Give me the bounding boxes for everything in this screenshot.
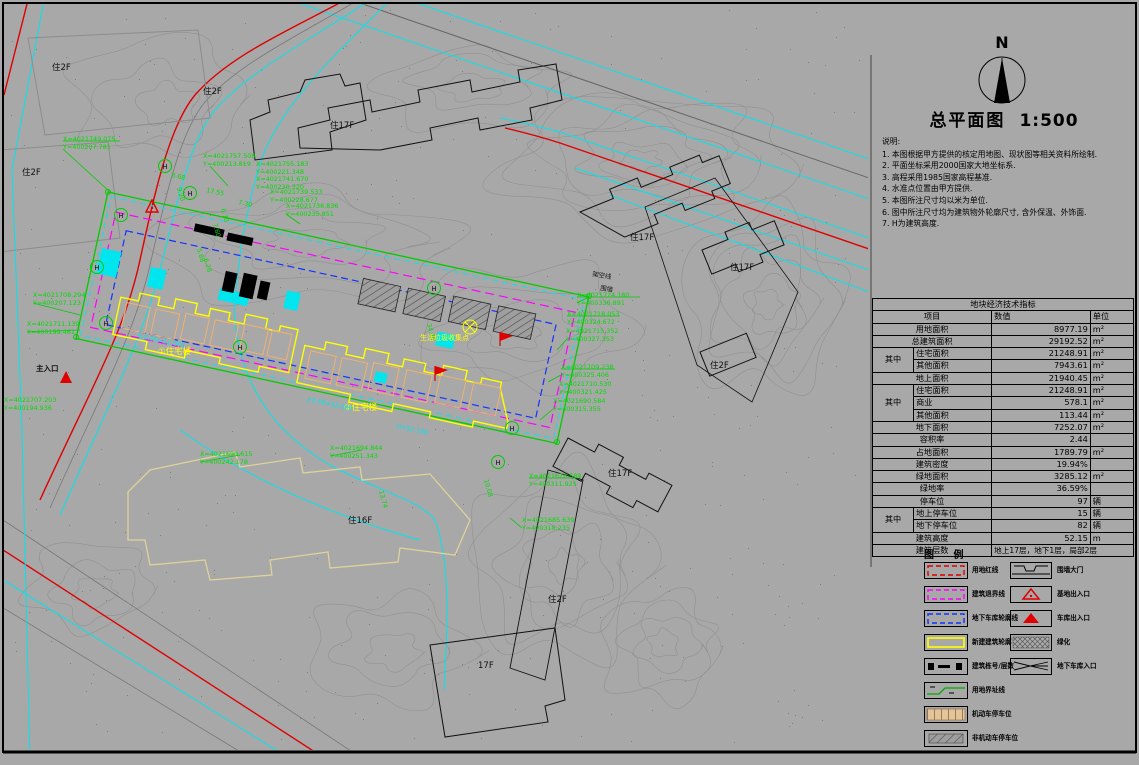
survey-dot: [660, 450, 661, 451]
survey-dot: [409, 68, 410, 69]
survey-dot: [595, 289, 596, 290]
survey-dot: [280, 659, 281, 660]
survey-dot: [743, 643, 744, 644]
note-line: 2. 平面坐标采用2000国家大地坐标系.: [882, 160, 1136, 172]
survey-dot: [199, 610, 200, 611]
building-label: 住2F: [52, 62, 71, 73]
survey-dot: [162, 732, 163, 733]
survey-dot: [63, 410, 64, 411]
survey-dot: [633, 246, 634, 247]
survey-dot: [322, 218, 323, 219]
survey-dot: [535, 13, 536, 14]
survey-dot: [263, 214, 264, 215]
building-outline-16f: [128, 452, 470, 580]
survey-dot: [558, 26, 559, 27]
survey-dot: [245, 23, 246, 24]
survey-dot: [785, 238, 786, 239]
survey-dot: [469, 694, 470, 695]
service-structures: [182, 223, 279, 302]
survey-dot: [835, 195, 836, 196]
survey-dot: [94, 118, 95, 119]
legend-label: 地下车库入口: [1057, 658, 1097, 674]
survey-dot: [645, 254, 646, 255]
survey-dot: [343, 48, 344, 49]
survey-dot: [611, 488, 612, 489]
survey-dot: [620, 110, 621, 111]
contour-line: [548, 547, 579, 584]
svg-text:H: H: [94, 264, 99, 272]
survey-dot: [60, 479, 61, 480]
survey-dot: [443, 430, 444, 431]
survey-dot: [783, 564, 784, 565]
survey-dot: [643, 360, 644, 361]
survey-dot: [492, 51, 493, 52]
building-label: 住17F: [608, 468, 632, 479]
survey-dot: [390, 10, 391, 11]
drawing-scale: 1:500: [1019, 111, 1078, 131]
coord-label: X=4021736.836Y=400235.851: [285, 202, 338, 218]
svg-text:H: H: [495, 459, 500, 467]
survey-dot: [779, 596, 780, 597]
legend-swatch-building-number: [924, 658, 968, 675]
contour-line: [468, 470, 640, 644]
survey-dot: [845, 258, 846, 259]
contour-line: [403, 53, 542, 110]
coordinate-labels: X=4021749.075Y=400207.781 X=4021757.508Y…: [3, 135, 629, 532]
survey-dot: [734, 742, 735, 743]
survey-dot: [90, 590, 91, 591]
survey-dot: [836, 366, 837, 367]
coord-label: X=4021694.844Y=400251.343: [329, 444, 382, 460]
survey-dot: [166, 273, 167, 274]
survey-dot: [831, 427, 832, 428]
survey-dot: [854, 112, 855, 113]
survey-dot: [793, 371, 794, 372]
survey-dot: [431, 660, 432, 661]
contour-line: [18, 543, 158, 637]
dim-label: 9.20: [175, 187, 185, 202]
survey-dot: [206, 170, 207, 171]
survey-dot: [39, 268, 40, 269]
table-row: 其中地上停车位15辆: [873, 508, 1134, 520]
survey-dot: [602, 464, 603, 465]
building-outline: [576, 147, 734, 250]
legend-label: 绿化: [1057, 634, 1070, 650]
survey-dot: [235, 495, 236, 496]
survey-dot: [669, 591, 670, 592]
contour-line: [262, 229, 349, 257]
contour-line: [647, 628, 679, 657]
building-outline: [510, 470, 583, 680]
survey-dot: [396, 180, 397, 181]
survey-dot: [246, 331, 247, 332]
survey-dot: [174, 581, 175, 582]
contour-line: [575, 126, 720, 187]
survey-dot: [751, 385, 752, 386]
svg-text:H: H: [162, 163, 167, 171]
survey-dot: [794, 690, 795, 691]
survey-dot: [168, 269, 169, 270]
survey-dot: [82, 591, 83, 592]
coord-label: X=4021699.615Y=400242.178: [199, 450, 252, 466]
contour-line: [329, 611, 451, 687]
building-label: 住2F: [548, 594, 567, 605]
survey-dot: [744, 475, 745, 476]
survey-dot: [165, 124, 166, 125]
survey-dot: [732, 574, 733, 575]
survey-dot: [619, 274, 620, 275]
survey-dot: [180, 152, 181, 153]
survey-dot: [300, 273, 301, 274]
survey-dot: [673, 416, 674, 417]
survey-dot: [377, 703, 378, 704]
survey-dot: [750, 425, 751, 426]
survey-dot: [379, 118, 380, 119]
survey-dot: [128, 326, 129, 327]
survey-dot: [346, 46, 347, 47]
survey-dot: [547, 276, 548, 277]
survey-dot: [99, 311, 100, 312]
survey-dot: [814, 93, 815, 94]
survey-dot: [399, 203, 400, 204]
survey-dot: [404, 344, 405, 345]
survey-dot: [398, 81, 399, 82]
survey-dot: [788, 606, 789, 607]
survey-dot: [818, 618, 819, 619]
project-site: [75, 192, 589, 447]
survey-dot: [305, 152, 306, 153]
survey-dot: [162, 612, 163, 613]
coord-label: X=4021708.294Y=400207.123: [32, 291, 85, 307]
legend-swatch-garage-line: [924, 610, 968, 627]
survey-dot: [317, 558, 318, 559]
survey-dot: [242, 127, 243, 128]
legend-label: 建筑退界线: [972, 586, 1005, 602]
survey-dot: [66, 57, 67, 58]
legend-swatch-gate: [1010, 562, 1052, 579]
survey-dot: [275, 453, 276, 454]
survey-dot: [87, 269, 88, 270]
survey-dot: [662, 645, 663, 646]
survey-dot: [717, 597, 718, 598]
survey-dot: [498, 650, 499, 651]
legend-swatch-new-building: [924, 634, 968, 651]
legend-swatch-setback-line: [924, 586, 968, 603]
survey-dot: [140, 474, 141, 475]
survey-dot: [352, 482, 353, 483]
height-label: H=52.150: [396, 422, 429, 437]
survey-dot: [420, 147, 421, 148]
survey-dot: [178, 509, 179, 510]
survey-dot: [255, 87, 256, 88]
survey-dot: [31, 229, 32, 230]
survey-dot: [533, 629, 534, 630]
survey-dot: [682, 250, 683, 251]
survey-dot: [201, 696, 202, 697]
survey-dot: [273, 313, 274, 314]
survey-dot: [96, 724, 97, 725]
survey-dot: [179, 679, 180, 680]
survey-dot: [339, 64, 340, 65]
survey-dot: [233, 512, 234, 513]
survey-dot: [833, 453, 834, 454]
svg-text:H: H: [431, 285, 436, 293]
survey-dot: [307, 672, 308, 673]
survey-dot: [166, 572, 167, 573]
survey-dot: [232, 431, 233, 432]
survey-dot: [778, 701, 779, 702]
survey-dot: [106, 600, 107, 601]
survey-dot: [546, 560, 547, 561]
survey-dot: [287, 263, 288, 264]
carport-row: [358, 276, 536, 341]
contour-line: [367, 45, 571, 133]
survey-dot: [468, 667, 469, 668]
survey-dot: [550, 29, 551, 30]
legend-label: 建筑栋号/层数: [972, 658, 1014, 674]
survey-dot: [155, 171, 156, 172]
survey-dot: [91, 683, 92, 684]
survey-dot: [510, 597, 511, 598]
survey-dot: [281, 739, 282, 740]
survey-dot: [283, 151, 284, 152]
building-outline: [250, 74, 366, 160]
survey-dot: [654, 410, 655, 411]
table-row: 绿地面积3285.12m²: [873, 471, 1134, 483]
survey-dot: [88, 252, 89, 253]
survey-dot: [69, 525, 70, 526]
survey-dot: [789, 726, 790, 727]
markers: [60, 200, 513, 383]
page-title: 总平面图1:500: [873, 106, 1135, 131]
survey-dot: [125, 532, 126, 533]
entrance-arrow: [60, 371, 72, 383]
survey-dot: [720, 505, 721, 506]
survey-dot: [563, 591, 564, 592]
survey-dot: [712, 462, 713, 463]
legend-swatch-garage-ramp: [1010, 658, 1052, 675]
survey-dot: [628, 328, 629, 329]
survey-dot: [795, 715, 796, 716]
survey-dot: [543, 615, 544, 616]
survey-dot: [606, 350, 607, 351]
legend-label: 用地界址线: [972, 682, 1005, 698]
survey-dot: [683, 657, 684, 658]
survey-dot: [409, 345, 410, 346]
survey-dot: [427, 460, 428, 461]
survey-dot: [758, 79, 759, 80]
survey-dot: [668, 253, 669, 254]
survey-dot: [139, 79, 140, 80]
building-outline: [298, 64, 562, 150]
survey-dot: [660, 678, 661, 679]
survey-dot: [275, 245, 276, 246]
survey-dot: [412, 507, 413, 508]
contour-line: [620, 150, 663, 172]
building-label: 住2F: [22, 167, 41, 178]
contour-line: [72, 578, 119, 609]
survey-dot: [462, 664, 463, 665]
survey-dot: [414, 738, 415, 739]
survey-dot: [148, 513, 149, 514]
survey-dot: [20, 253, 21, 254]
survey-dot: [429, 584, 430, 585]
survey-dot: [72, 350, 73, 351]
survey-dot: [792, 723, 793, 724]
note-line: 1. 本图根据甲方提供的核定用地图、现状图等相关资料所绘制.: [882, 149, 1136, 161]
survey-dot: [729, 253, 730, 254]
coord-label: X=4021757.508Y=400213.819: [202, 152, 255, 168]
site-text-labels: ①住宅楼 ②住宅楼 生活垃圾收集点 主入口 ±0.00=52.000 H=52.…: [36, 269, 614, 437]
survey-dot: [732, 614, 733, 615]
survey-dot: [500, 21, 501, 22]
survey-dot: [587, 562, 588, 563]
table-row: 其中住宅面积21248.91m²: [873, 348, 1134, 360]
contour-line: [310, 589, 489, 711]
survey-dot: [450, 21, 451, 22]
survey-dot: [791, 226, 792, 227]
survey-dot: [77, 454, 78, 455]
survey-dot: [746, 80, 747, 81]
survey-dot: [377, 218, 378, 219]
survey-dot: [697, 387, 698, 388]
survey-dot: [835, 282, 836, 283]
survey-dot: [515, 709, 516, 710]
coord-label: X=4021718.053Y=400324.672: [566, 310, 619, 326]
survey-dot: [46, 610, 47, 611]
svg-text:H: H: [237, 344, 242, 352]
building-labels: 住2F 住2F 住2F 住17F 住17F 住17F 住2F 住16F 住17F…: [22, 62, 754, 671]
legend-swatch-bike-parking: [924, 730, 968, 747]
survey-dot: [739, 428, 740, 429]
legend-swatch-greenery: [1010, 634, 1052, 651]
survey-dot: [634, 613, 635, 614]
survey-dot: [156, 408, 157, 409]
survey-dot: [530, 658, 531, 659]
survey-dot: [31, 530, 32, 531]
survey-dot: [268, 435, 269, 436]
new-building-2: [295, 336, 517, 437]
table-row: 地下面积7252.07m²: [873, 421, 1134, 433]
survey-dot: [802, 717, 803, 718]
survey-dot: [765, 197, 766, 198]
survey-dot: [165, 193, 166, 194]
survey-dot: [352, 386, 353, 387]
contour-line: [743, 273, 800, 334]
survey-dot: [209, 618, 210, 619]
survey-dot: [217, 503, 218, 504]
survey-dot: [462, 71, 463, 72]
survey-dot: [109, 313, 110, 314]
survey-dot: [278, 681, 279, 682]
survey-dot: [278, 95, 279, 96]
survey-dot: [369, 624, 370, 625]
survey-dot: [585, 497, 586, 498]
note-line: 4. 水准点位置由甲方提供.: [882, 183, 1136, 195]
survey-dot: [650, 658, 651, 659]
survey-dot: [797, 484, 798, 485]
survey-dot: [784, 215, 785, 216]
indicators-table: 地块经济技术指标 项目数值单位 用地面积8977.19m² 总建筑面积29192…: [872, 298, 1134, 557]
survey-dot: [556, 173, 557, 174]
legend-swatch-red-line: [924, 562, 968, 579]
coord-label: X=4021685.639Y=400318.235: [521, 516, 574, 532]
survey-dot: [642, 395, 643, 396]
survey-dot: [631, 741, 632, 742]
dim-label: 7.30: [238, 199, 253, 209]
survey-dot: [357, 199, 358, 200]
survey-dot: [788, 713, 789, 714]
coord-label: X=4021676.589Y=400311.925: [528, 472, 581, 488]
survey-dot: [162, 131, 163, 132]
survey-dot: [611, 36, 612, 37]
survey-dot: [822, 720, 823, 721]
survey-dot: [763, 499, 764, 500]
table-row: 用地面积8977.19m²: [873, 323, 1134, 335]
legend-label: 基地出入口: [1057, 586, 1090, 602]
survey-dot: [154, 64, 155, 65]
survey-dot: [657, 420, 658, 421]
survey-dot: [214, 574, 215, 575]
survey-dot: [424, 673, 425, 674]
contour-line: [709, 217, 847, 383]
survey-dot: [377, 597, 378, 598]
survey-dot: [430, 659, 431, 660]
survey-dot: [734, 219, 735, 220]
survey-dot: [516, 139, 517, 140]
building-label: 住17F: [730, 262, 754, 273]
survey-dot: [581, 736, 582, 737]
survey-dot: [730, 558, 731, 559]
legend-swatch-parking: [924, 706, 968, 723]
survey-dot: [93, 674, 94, 675]
table-row: 项目数值单位: [873, 311, 1134, 323]
main-entrance-label: 主入口: [36, 363, 59, 373]
survey-dot: [435, 429, 436, 430]
survey-dot: [712, 466, 713, 467]
legend-swatch-boundary-line: [924, 682, 968, 699]
survey-dot: [183, 307, 184, 308]
survey-dot: [655, 200, 656, 201]
survey-dot: [603, 599, 604, 600]
survey-dot: [270, 557, 271, 558]
survey-dot: [355, 713, 356, 714]
table-row: 总建筑面积29192.52m²: [873, 335, 1134, 347]
survey-dot: [392, 196, 393, 197]
dim-label: 17.55: [206, 187, 225, 198]
survey-dot: [660, 586, 661, 587]
table-row: 其中住宅面积21248.91m²: [873, 385, 1134, 397]
contour-line: [682, 196, 851, 396]
coord-label: X=4021715.352Y=400327.353: [565, 327, 618, 343]
survey-dot: [542, 725, 543, 726]
survey-dot: [245, 309, 246, 310]
survey-dot: [99, 484, 100, 485]
survey-dot: [481, 738, 482, 739]
survey-dot: [360, 42, 361, 43]
survey-dot: [160, 535, 161, 536]
north-arrow: N: [979, 33, 1025, 103]
svg-text:H: H: [509, 425, 514, 433]
survey-dot: [780, 210, 781, 211]
survey-dot: [350, 35, 351, 36]
survey-dot: [539, 393, 540, 394]
survey-dot: [419, 447, 420, 448]
survey-dot: [221, 630, 222, 631]
survey-dot: [268, 250, 269, 251]
note-line: 3. 高程采用1985国家高程基准.: [882, 172, 1136, 184]
survey-dot: [632, 571, 633, 572]
